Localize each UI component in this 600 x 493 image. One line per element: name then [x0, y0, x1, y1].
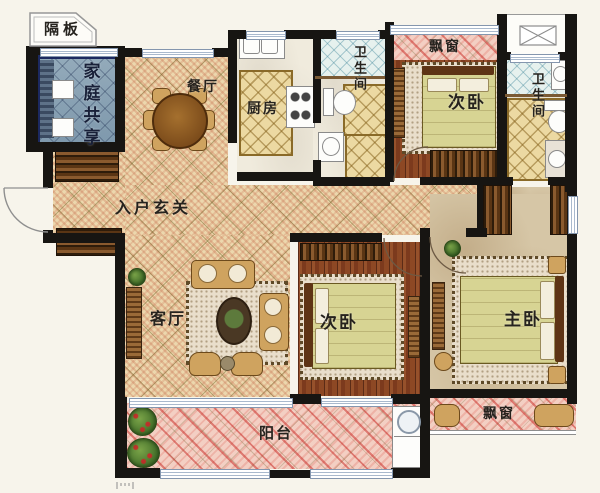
bedroom-top-door-arc — [394, 147, 428, 181]
floor-plan: 隔板 家庭共享 餐厅 厨房 卫生间 飘窗 次卧 卫生间 入户玄关 客厅 次卧 主… — [0, 0, 600, 493]
room-label-master: 主卧 — [504, 311, 542, 331]
room-label-bath2: 卫生间 — [528, 72, 543, 120]
room-label-family: 家庭共享 — [79, 62, 99, 150]
room-label-bedroom-top: 次卧 — [448, 94, 486, 114]
room-label-kitchen: 厨房 — [247, 101, 279, 117]
bedroom-mid-door-arc — [384, 238, 422, 276]
room-label-partition: 隔板 — [44, 21, 82, 38]
room-label-bath1: 卫生间 — [350, 45, 365, 93]
entry-door-arc — [4, 188, 48, 232]
room-label-bedroom-mid: 次卧 — [320, 314, 358, 334]
room-label-bay-bottom: 飘窗 — [483, 406, 515, 422]
room-label-balcony: 阳台 — [259, 425, 293, 442]
room-label-foyer: 入户玄关 — [115, 199, 191, 217]
master-door-arc — [430, 237, 466, 273]
room-label-dining: 餐厅 — [187, 79, 219, 95]
scale-marker — [117, 482, 133, 489]
room-label-bay-top: 飘窗 — [429, 39, 461, 55]
room-label-living: 客厅 — [150, 310, 186, 328]
